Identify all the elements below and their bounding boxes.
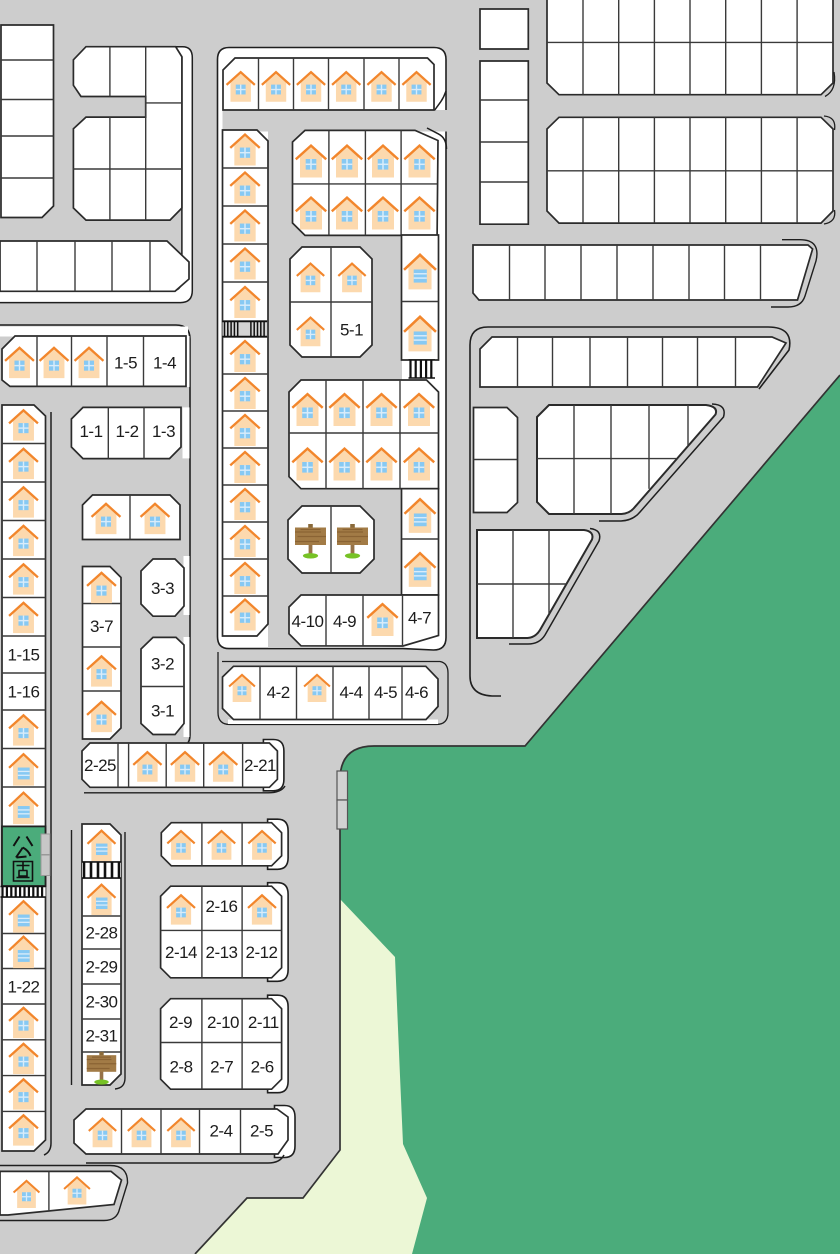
svg-text:2-12: 2-12 <box>245 943 277 962</box>
svg-text:2-28: 2-28 <box>85 924 117 943</box>
svg-text:1-2: 1-2 <box>115 422 138 441</box>
svg-text:2-31: 2-31 <box>85 1027 117 1046</box>
svg-text:2-4: 2-4 <box>209 1122 232 1141</box>
svg-text:2-8: 2-8 <box>169 1058 192 1077</box>
svg-text:1-3: 1-3 <box>152 422 175 441</box>
svg-text:2-13: 2-13 <box>205 943 237 962</box>
svg-text:4-7: 4-7 <box>408 609 431 628</box>
svg-text:2-5: 2-5 <box>250 1122 273 1141</box>
svg-text:1-16: 1-16 <box>7 683 39 702</box>
svg-text:4-9: 4-9 <box>333 612 356 631</box>
svg-text:2-7: 2-7 <box>210 1058 233 1077</box>
svg-text:1-22: 1-22 <box>7 978 39 997</box>
svg-text:4-6: 4-6 <box>405 683 428 702</box>
svg-text:3-2: 3-2 <box>151 655 174 674</box>
svg-text:1-5: 1-5 <box>114 354 137 373</box>
svg-text:2-11: 2-11 <box>248 1013 279 1032</box>
svg-text:5-1: 5-1 <box>340 321 363 340</box>
svg-text:1-4: 1-4 <box>153 354 176 373</box>
svg-text:3-3: 3-3 <box>151 579 174 598</box>
svg-text:4-2: 4-2 <box>267 683 290 702</box>
svg-text:2-29: 2-29 <box>85 958 117 977</box>
svg-text:4-5: 4-5 <box>374 683 397 702</box>
svg-text:2-14: 2-14 <box>165 943 197 962</box>
svg-text:4-10: 4-10 <box>291 612 323 631</box>
svg-text:2-30: 2-30 <box>85 993 117 1012</box>
svg-text:2-10: 2-10 <box>207 1013 239 1032</box>
svg-text:2-16: 2-16 <box>205 897 237 916</box>
svg-text:3-7: 3-7 <box>90 617 113 636</box>
svg-text:1-1: 1-1 <box>79 422 102 441</box>
svg-text:2-25: 2-25 <box>84 756 116 775</box>
svg-text:2-6: 2-6 <box>251 1058 274 1077</box>
svg-text:3-1: 3-1 <box>151 702 174 721</box>
svg-text:4-4: 4-4 <box>339 683 362 702</box>
svg-text:2-9: 2-9 <box>169 1013 192 1032</box>
svg-text:1-15: 1-15 <box>7 646 39 665</box>
svg-text:2-21: 2-21 <box>244 756 276 775</box>
